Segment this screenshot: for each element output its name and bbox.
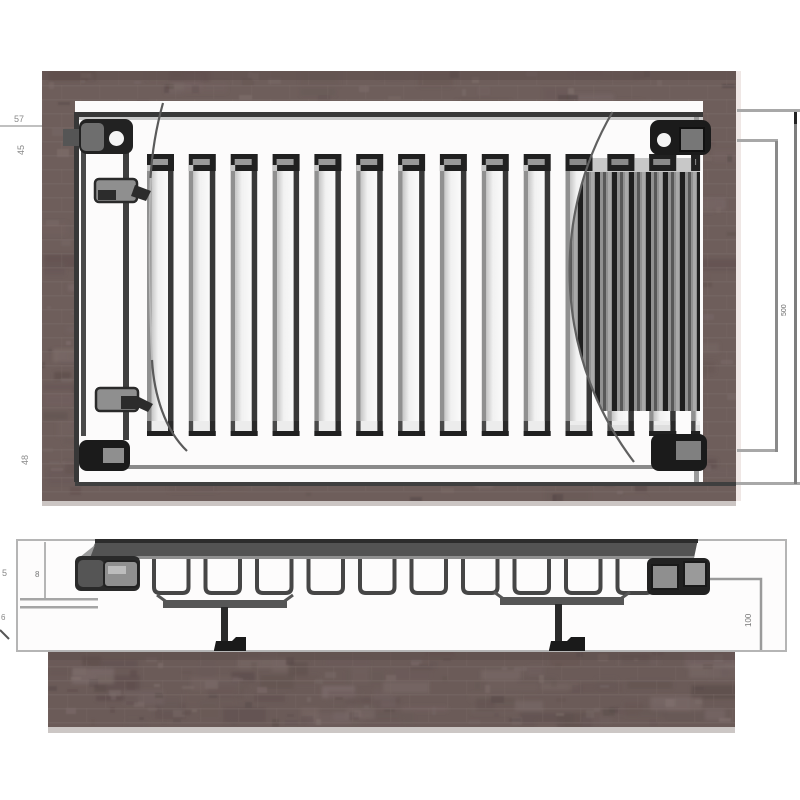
svg-text:48: 48 (20, 455, 30, 465)
svg-text:45: 45 (16, 145, 26, 155)
svg-text:8: 8 (35, 570, 40, 579)
svg-text:57: 57 (14, 114, 24, 124)
svg-text:5: 5 (2, 568, 7, 578)
svg-text:100: 100 (744, 613, 753, 627)
svg-text:500: 500 (781, 304, 788, 316)
svg-text:6: 6 (1, 613, 6, 622)
